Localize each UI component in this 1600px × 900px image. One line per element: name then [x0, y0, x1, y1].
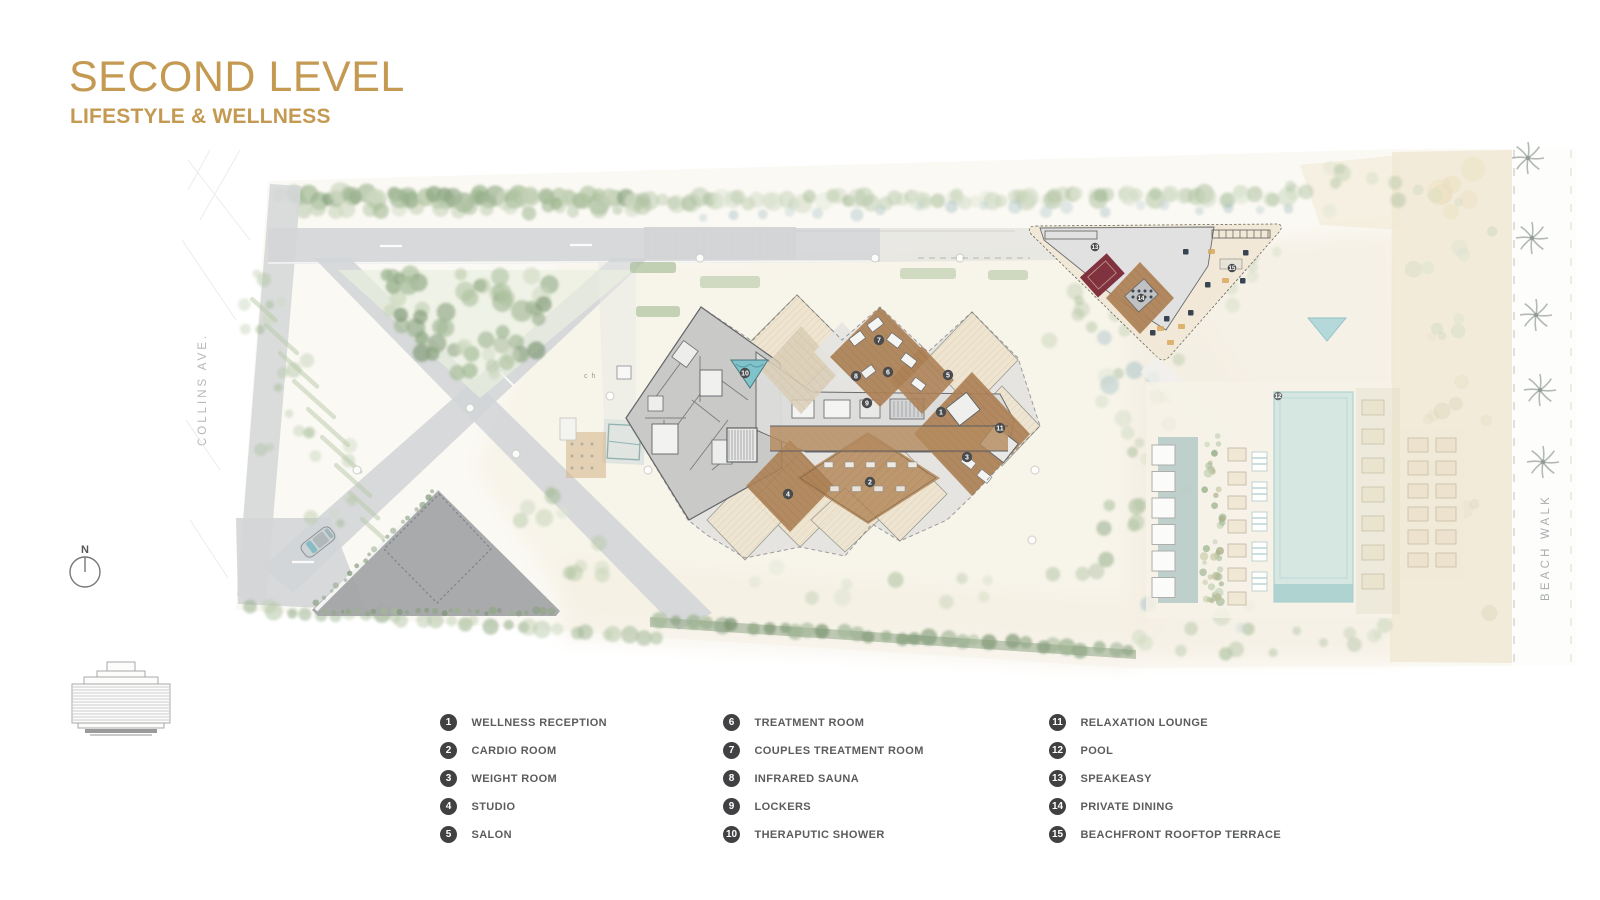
svg-text:6: 6	[886, 370, 890, 377]
svg-text:13: 13	[1092, 245, 1099, 251]
svg-text:c h: c h	[584, 373, 596, 380]
svg-text:8: 8	[854, 374, 858, 381]
svg-text:5: 5	[946, 373, 950, 380]
svg-text:BEACH WALK: BEACH WALK	[1540, 494, 1552, 601]
svg-text:COLLINS AVE.: COLLINS AVE.	[197, 333, 209, 446]
svg-text:2: 2	[868, 480, 872, 487]
svg-text:1: 1	[939, 410, 943, 417]
svg-text:3: 3	[965, 455, 969, 462]
svg-text:10: 10	[741, 371, 749, 378]
svg-text:4: 4	[786, 492, 790, 499]
svg-text:9: 9	[865, 401, 869, 408]
svg-text:7: 7	[877, 338, 881, 345]
svg-text:14: 14	[1138, 296, 1145, 302]
svg-text:11: 11	[996, 426, 1004, 433]
svg-text:15: 15	[1229, 266, 1236, 272]
svg-text:12: 12	[1275, 394, 1282, 400]
